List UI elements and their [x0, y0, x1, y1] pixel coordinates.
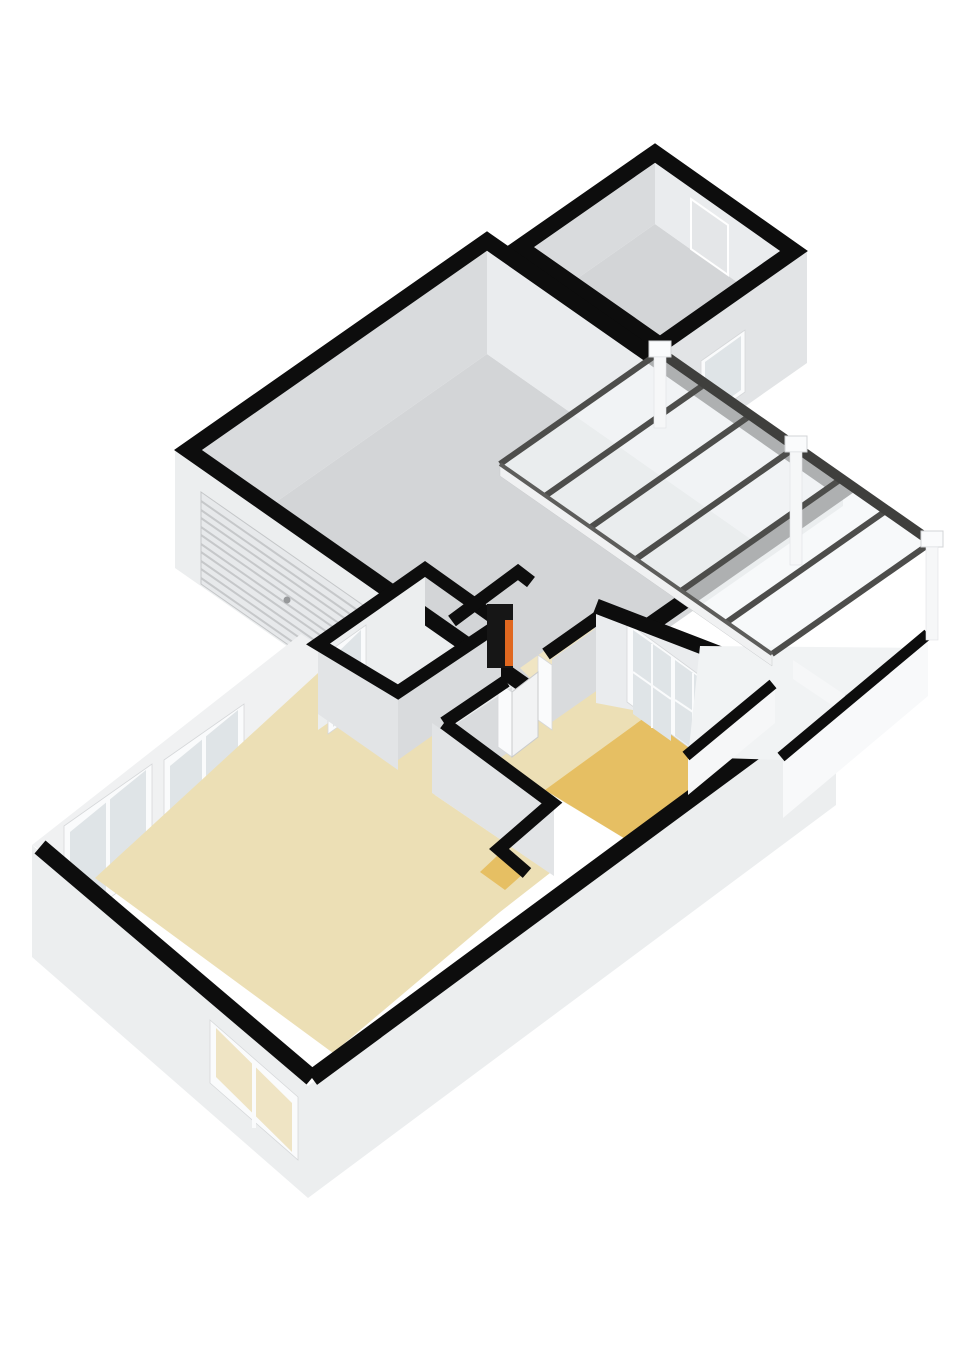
- boiler-orange-panel: [505, 620, 513, 666]
- roof-post-cap: [921, 531, 943, 547]
- roof-post-cap: [785, 436, 807, 452]
- garage-door-handle: [284, 597, 291, 604]
- roof-post: [790, 452, 802, 565]
- door-frame: [538, 655, 552, 730]
- door-frame: [498, 682, 512, 757]
- roof-post: [654, 357, 666, 428]
- floor-plan-canvas: [0, 0, 960, 1357]
- floor-plan-3d: [0, 0, 960, 1357]
- roof-post-cap: [649, 341, 671, 357]
- roof-post: [926, 547, 938, 640]
